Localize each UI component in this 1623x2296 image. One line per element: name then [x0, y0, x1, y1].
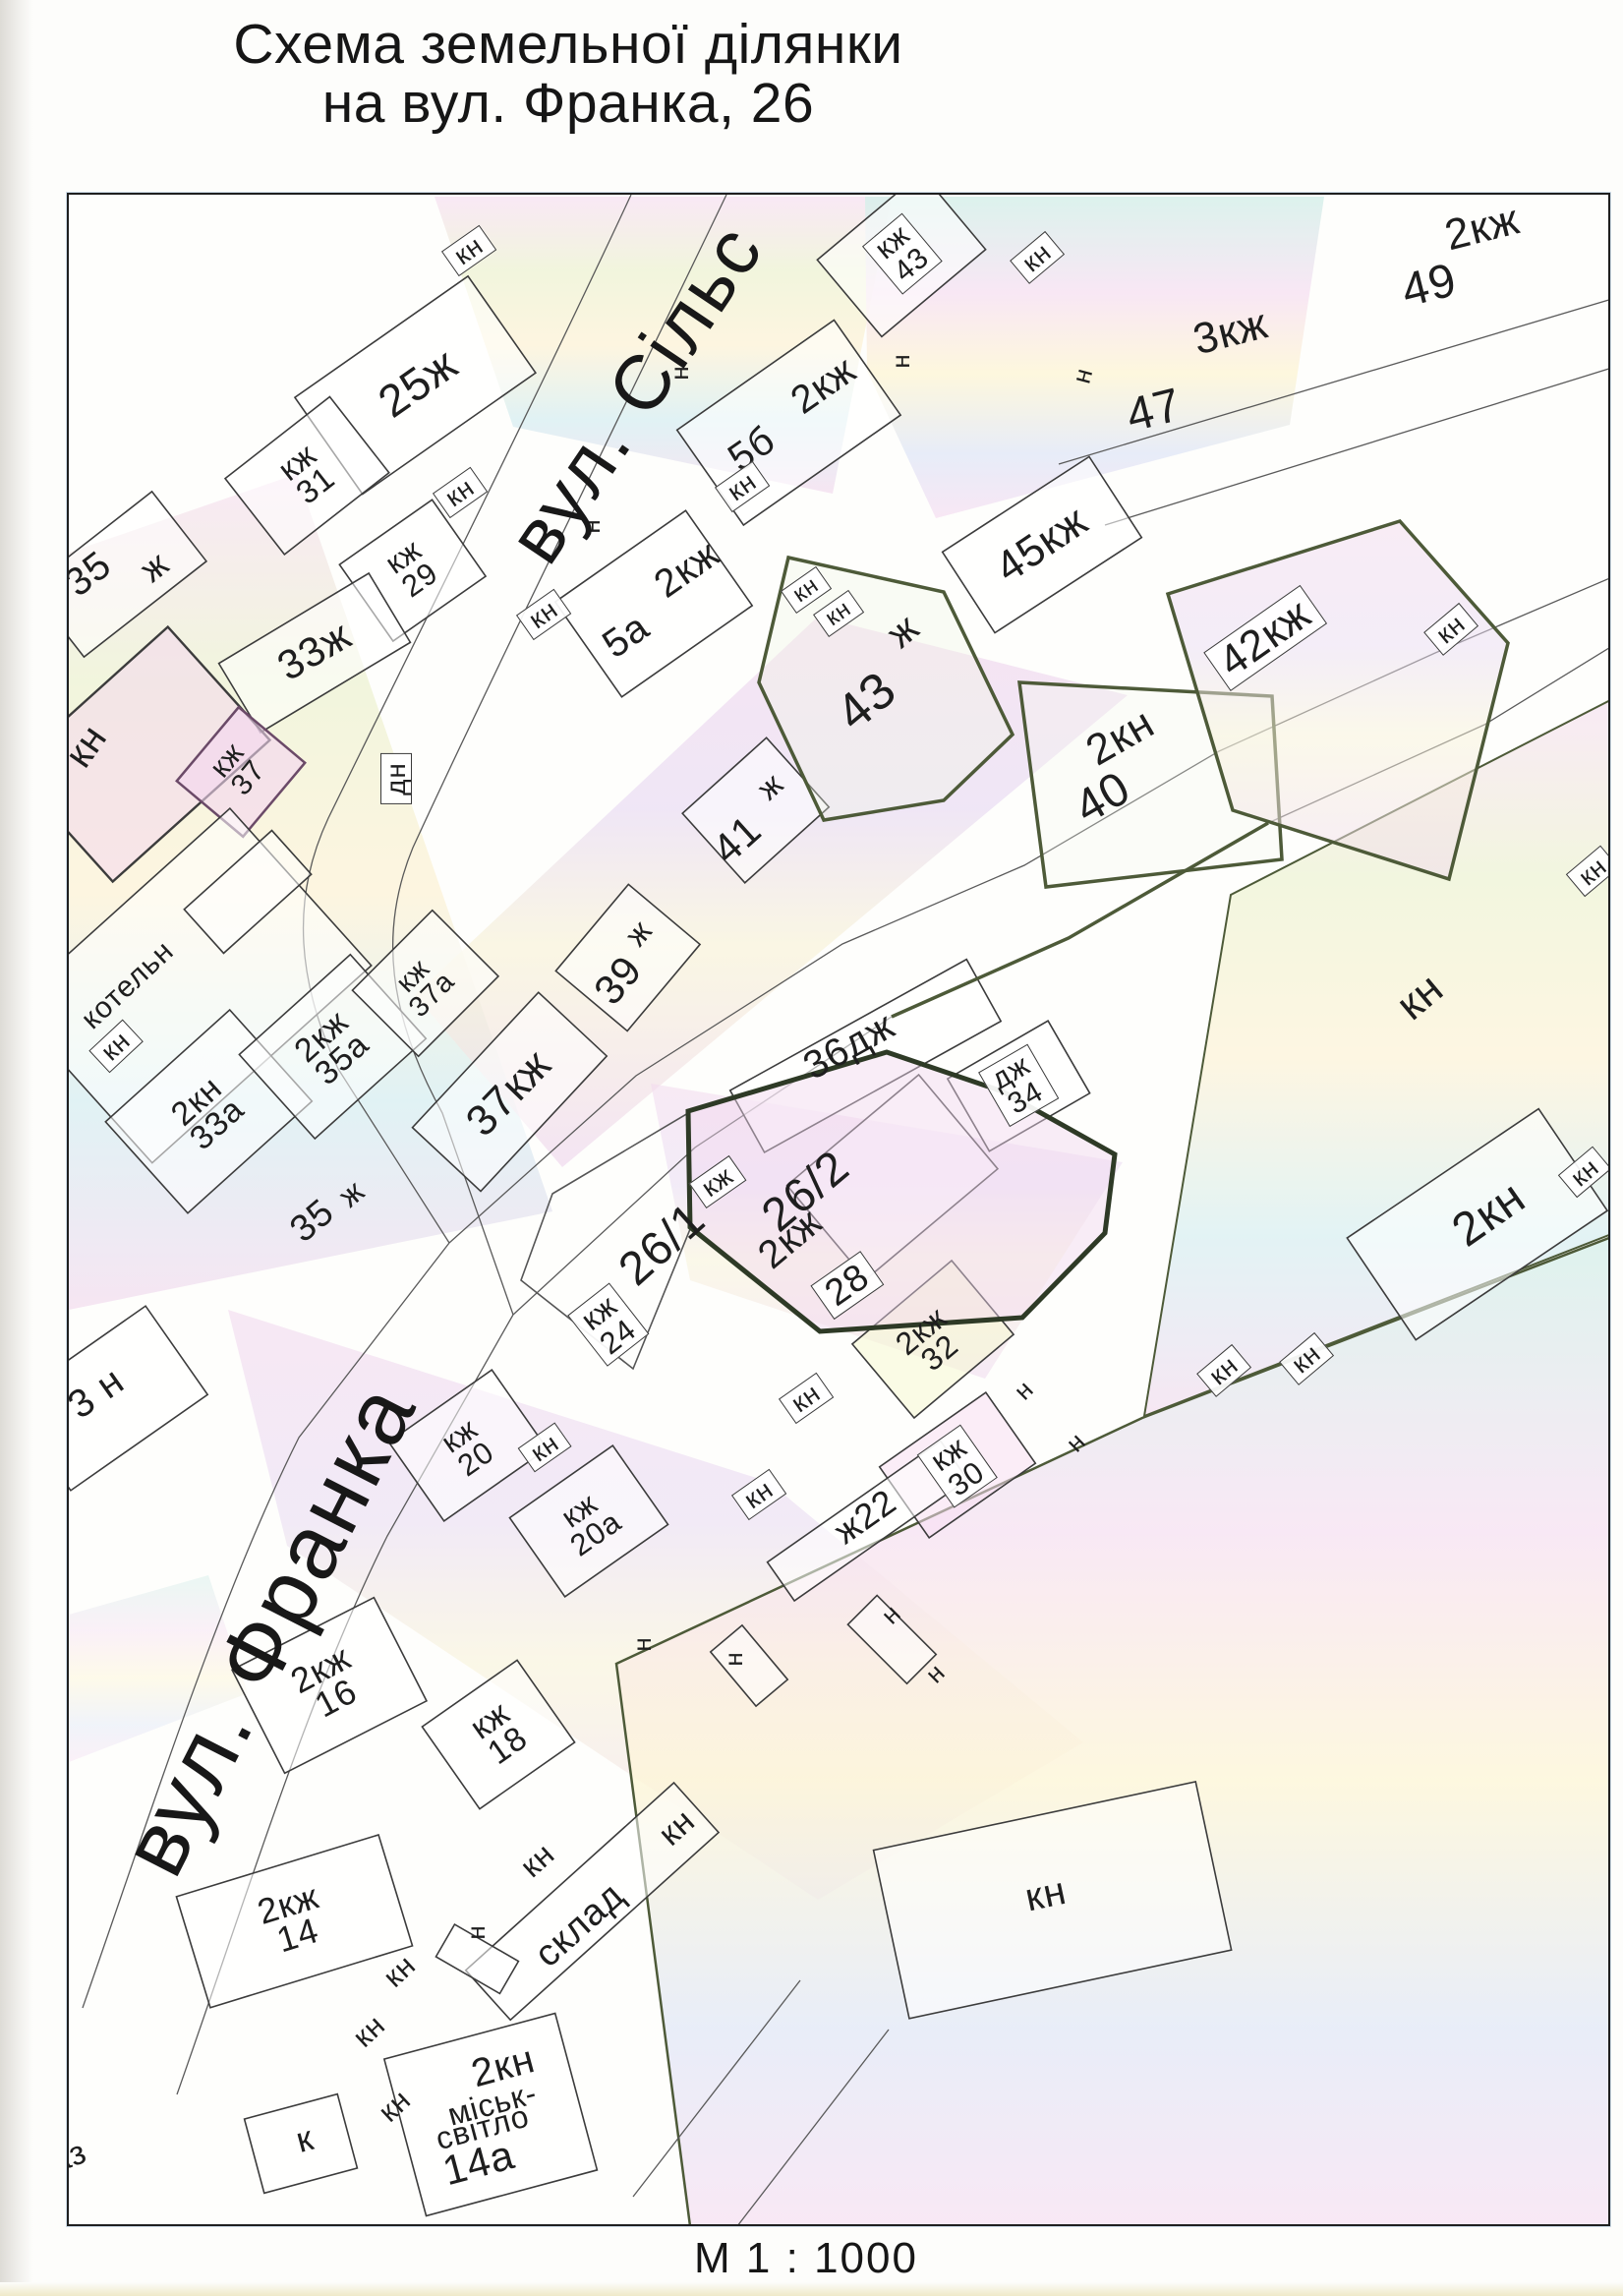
map-label-2кн: 2кн: [1446, 1175, 1534, 1254]
map-label-2кн: 2кн: [1080, 703, 1161, 773]
map-labels-layer: кн25жкж 3135ж33жкж 29кнкж 37днкотельнкн2…: [69, 195, 1608, 2224]
map-label-н: н: [723, 1651, 746, 1666]
page-title-line2: на вул. Франка, 26: [322, 71, 814, 136]
map-label-кж-20а: кж 20а: [550, 1484, 626, 1560]
map-label-кн: кн: [654, 1804, 700, 1851]
map-label-кж: кж: [689, 1155, 747, 1208]
map-label-кн: кн: [1196, 1344, 1251, 1397]
map-label-40: 40: [1069, 766, 1137, 831]
map-label-кн: кн: [715, 461, 770, 512]
map-label-кн: кн: [1566, 846, 1610, 897]
map-label-котельн: котельн: [77, 937, 178, 1034]
map-label-кн: кн: [731, 1469, 786, 1520]
map-label-кж-18: кж 18: [466, 1697, 533, 1770]
map-label-ж: ж: [882, 609, 926, 654]
map-label-кн: кн: [1010, 231, 1065, 284]
map-label-28: 28: [810, 1251, 884, 1320]
map-scale-label: М 1 : 1000: [694, 2234, 918, 2283]
street-name-вул.-Сільс: вул. Сільс: [498, 212, 774, 573]
map-label-кн: кн: [1391, 968, 1451, 1027]
map-label-2кж-32: 2кж 32: [892, 1302, 971, 1382]
map-label-37кж: 37кж: [460, 1043, 558, 1143]
map-label-кн: кн: [379, 1951, 421, 1992]
map-label-н: н: [465, 1924, 489, 1939]
map-label-н: н: [922, 1660, 950, 1687]
map-label-кж-37а: кж 37а: [386, 949, 459, 1022]
map-label-кж-20: кж 20: [437, 1414, 499, 1481]
map-label-кн: кн: [516, 589, 571, 640]
map-label-склад: склад: [530, 1877, 631, 1972]
map-label-43: 43: [830, 665, 905, 738]
map-label-кн: кн: [516, 1839, 560, 1882]
page-title-line1: Схема земельної ділянки: [233, 12, 902, 77]
map-label-49: 49: [1398, 259, 1461, 314]
map-label-кн: кн: [375, 2086, 416, 2127]
map-label-кн: кн: [441, 225, 496, 276]
scanned-page: Схема земельної ділянки на вул. Франка, …: [0, 0, 1623, 2296]
map-label-к: к: [293, 2121, 318, 2156]
map-label-дж-34: дж 34: [978, 1044, 1059, 1127]
map-label-дн: дн: [380, 753, 412, 804]
map-label-2кн-33а: 2кн 33а: [165, 1071, 250, 1155]
map-label-36дж: 36дж: [798, 1007, 900, 1086]
map-label-кж-30: кж 30: [917, 1424, 998, 1507]
map-label-кж-24: кж 24: [567, 1282, 650, 1367]
map-label-кн: кн: [433, 467, 488, 518]
map-label-кн: кн: [67, 719, 113, 773]
map-label-н: н: [1063, 1429, 1090, 1456]
map-label-н: н: [631, 1636, 655, 1651]
map-label-26-1: 26/1: [612, 1197, 713, 1293]
map-label-2кж: 2кж: [785, 351, 862, 420]
map-label-ж22: ж22: [829, 1484, 901, 1549]
map-label-кн: кн: [813, 590, 864, 637]
map-label-2кж-35а: 2кж 35а: [290, 1006, 375, 1090]
map-label-кж-31: кж 31: [273, 439, 340, 509]
map-label-н: н: [878, 1601, 905, 1628]
map-label-н: н: [1011, 1377, 1038, 1404]
map-label-3-н: 3 н: [67, 1362, 130, 1425]
map-label-кн: кн: [1423, 603, 1478, 656]
map-label-ж: ж: [621, 915, 658, 951]
map-label-35: 35: [67, 546, 118, 603]
map-label-47: 47: [1123, 383, 1186, 439]
map-label-25ж: 25ж: [372, 341, 464, 423]
map-label-кж-37: кж 37: [205, 738, 269, 800]
cadastral-map: кн25жкж 3135ж33жкж 29кнкж 37днкотельнкн2…: [67, 193, 1610, 2226]
map-label-газ: газ: [67, 2137, 90, 2182]
scan-edge: [0, 0, 33, 2296]
map-label-35: 35: [285, 1194, 340, 1248]
map-label-3кж: 3кж: [1189, 304, 1272, 361]
map-label-н: н: [1070, 365, 1096, 385]
map-label-42кж: 42кж: [1203, 585, 1327, 691]
map-label-кж-43: кж 43: [862, 212, 943, 294]
map-label-39: 39: [589, 950, 649, 1011]
map-label-2кж: 2кж: [1441, 200, 1524, 257]
map-label-кн: кн: [779, 1373, 834, 1424]
map-label-кн: кн: [1279, 1332, 1334, 1385]
map-label-41: 41: [707, 809, 768, 869]
map-label-кж-29: кж 29: [381, 535, 443, 602]
map-label-ж: ж: [753, 769, 788, 805]
map-label-33ж: 33ж: [272, 616, 358, 686]
map-label-ж: ж: [135, 546, 174, 587]
street-name-вул.-Франка: вул. Франка: [111, 1372, 429, 1887]
map-label-2кж-14: 2кж 14: [254, 1879, 331, 1960]
map-label-кн: кн: [1022, 1873, 1070, 1917]
map-label-ж: ж: [334, 1176, 370, 1212]
scan-edge-bottom: [0, 2282, 1623, 2296]
map-label-кн: кн: [1558, 1147, 1610, 1198]
map-label-н: н: [890, 353, 913, 368]
map-label-2кж: 2кж: [649, 535, 725, 604]
map-label-45кж: 45кж: [990, 500, 1095, 589]
map-label-кн: кн: [518, 1423, 572, 1473]
map-label-кн: кн: [349, 2011, 390, 2052]
map-label-5а: 5а: [597, 609, 655, 665]
